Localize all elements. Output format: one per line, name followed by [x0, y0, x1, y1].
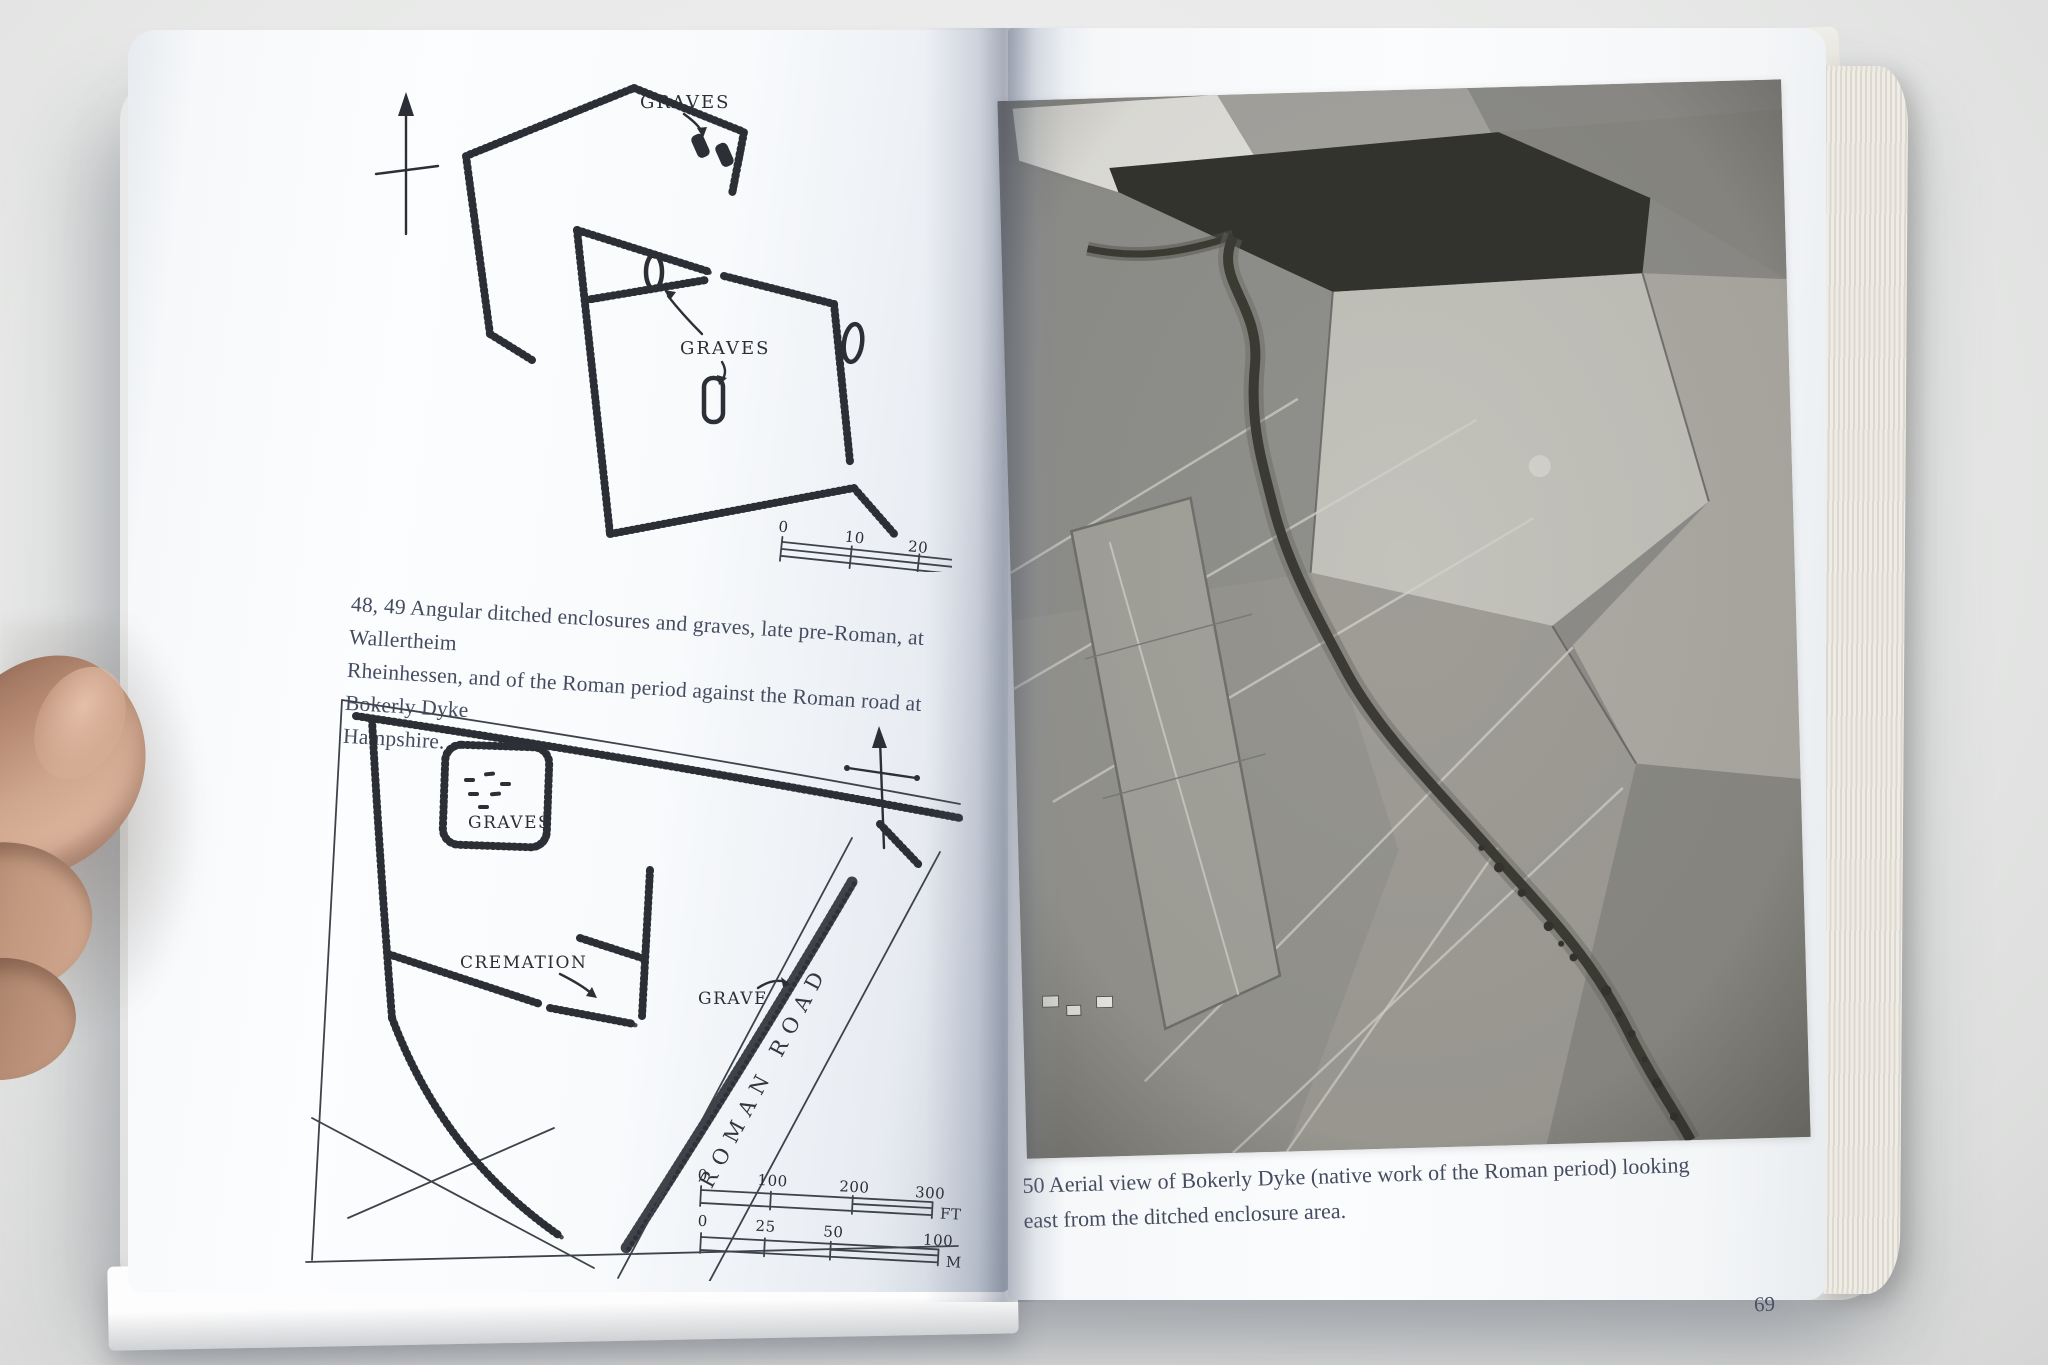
m-tick: 25: [755, 1217, 776, 1236]
scale-tick-20: 20: [907, 537, 929, 557]
grave-label: GRAVE: [698, 989, 768, 1009]
figure-49-scale-metres: 0 25 50 100 M: [696, 1212, 964, 1272]
cremation-arrow: [560, 974, 597, 998]
graves-label: GRAVES: [468, 813, 551, 833]
m-tick: 0: [697, 1212, 708, 1231]
fingertip: [0, 953, 80, 1085]
figure-49-plan: GRAVES CREMATION GRAVE ROMAN ROAD 0: [292, 686, 972, 1281]
grave-dash-marks: [464, 771, 511, 809]
ft-tick: 100: [757, 1171, 788, 1191]
book-photo-scene: GRAVES GRAVES 0 10 20 48, 49 Angular dit…: [0, 0, 2048, 1365]
figure-49-scale-feet: 0 100 200 300 FT: [696, 1166, 963, 1224]
figure-50-aerial-photo: [997, 79, 1810, 1158]
ft-unit: FT: [940, 1205, 962, 1224]
page-stack-fore-edge: [1814, 66, 1909, 1295]
graves-label-mid: GRAVES: [680, 338, 771, 359]
graves-label-top: GRAVES: [640, 92, 731, 113]
figure-48-scale-bar: 0 10 20: [775, 517, 952, 572]
figure-48-plan: GRAVES GRAVES 0 10 20: [372, 42, 952, 572]
ft-tick: 300: [915, 1183, 946, 1203]
scale-tick-10: 10: [844, 527, 866, 547]
m-unit: M: [945, 1253, 962, 1272]
north-arrow-icon: [376, 92, 438, 234]
roman-road: ROMAN ROAD: [618, 838, 940, 1281]
fingertip: [0, 830, 102, 1005]
m-tick: 50: [823, 1222, 844, 1241]
page-number: 69: [1754, 1292, 1776, 1318]
cremation-label: CREMATION: [460, 953, 587, 973]
ft-tick: 0: [697, 1166, 708, 1185]
m-tick: 100: [923, 1231, 954, 1251]
ft-tick: 200: [839, 1177, 870, 1197]
scale-tick-0: 0: [778, 517, 790, 536]
grave-marks: [646, 132, 865, 422]
